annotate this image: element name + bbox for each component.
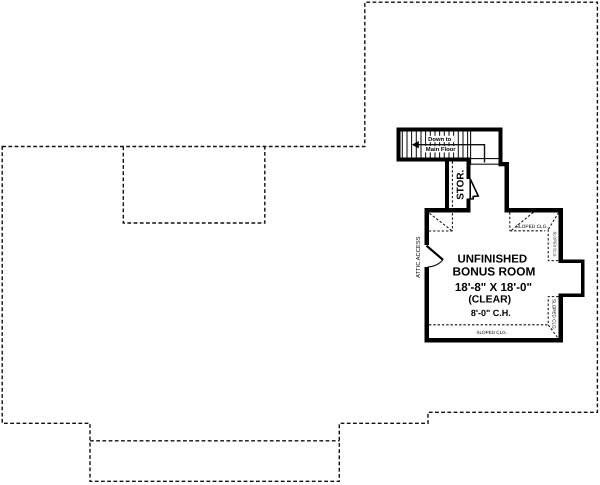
svg-text:SLOPED CLG.: SLOPED CLG. bbox=[552, 232, 557, 258]
svg-text:18'-8" X 18'-0": 18'-8" X 18'-0" bbox=[455, 281, 532, 294]
svg-text:(CLEAR): (CLEAR) bbox=[468, 295, 511, 306]
svg-text:BONUS ROOM: BONUS ROOM bbox=[452, 265, 535, 279]
svg-text:Main Floor: Main Floor bbox=[426, 146, 456, 153]
svg-text:SLOPED CLG.: SLOPED CLG. bbox=[552, 299, 557, 330]
svg-text:SLOPED CLG.: SLOPED CLG. bbox=[516, 224, 548, 230]
svg-text:8'-0" C.H.: 8'-0" C.H. bbox=[471, 308, 511, 318]
svg-text:ATTIC ACCESS: ATTIC ACCESS bbox=[415, 236, 422, 278]
svg-text:STOR.: STOR. bbox=[455, 170, 466, 200]
svg-text:SLOPED CLG.: SLOPED CLG. bbox=[476, 330, 507, 335]
svg-text:Down to: Down to bbox=[428, 136, 451, 143]
